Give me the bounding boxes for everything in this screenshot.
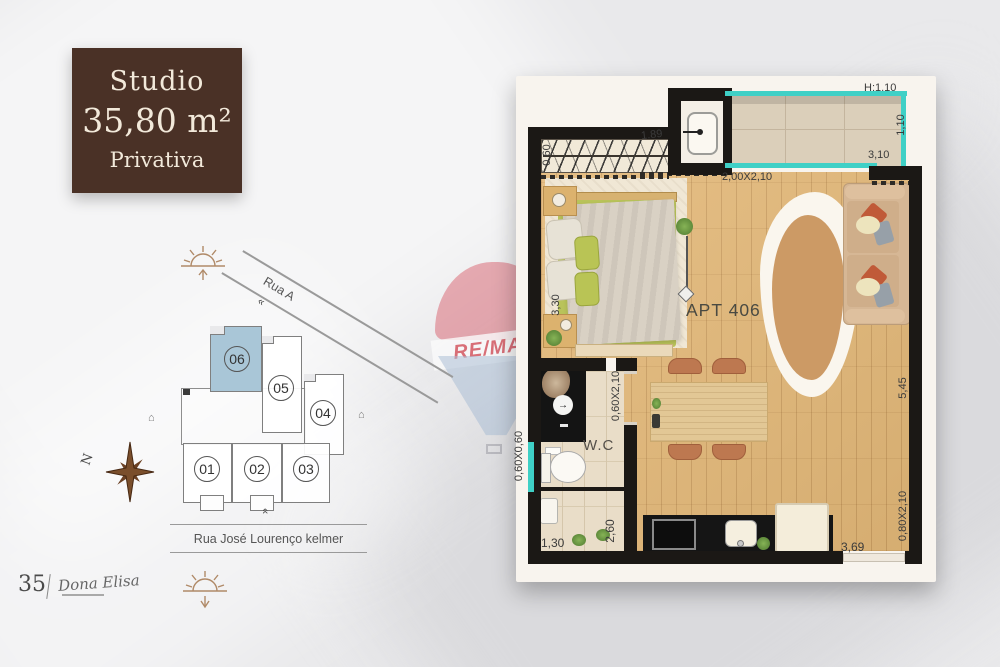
measurement-service-length: 2,60 xyxy=(603,511,617,551)
wc-door-jamb xyxy=(624,371,637,374)
plant xyxy=(757,537,770,550)
measurement-bedroom-length: 3,30 xyxy=(550,285,562,325)
street-line xyxy=(170,552,367,553)
measurement-living-length: 5,45 xyxy=(897,368,909,408)
tv-console xyxy=(575,344,673,357)
measurement-closet-width: 1.89 xyxy=(640,128,663,142)
balloon-basket xyxy=(486,444,502,454)
measurement-parapet-height: H:1.10 xyxy=(864,82,896,94)
entry-door-threshold xyxy=(843,553,905,562)
measurement-balcony-depth: 1,10 xyxy=(895,105,907,145)
wall-bottom-right-segment xyxy=(905,551,922,564)
unit-05-number: 05 xyxy=(268,375,294,401)
sunrise-icon xyxy=(180,236,226,282)
plant xyxy=(546,330,562,346)
cooktop xyxy=(652,519,696,550)
compass-rose-icon xyxy=(100,440,160,504)
entrance-marker-icon: ⌂ xyxy=(148,412,155,424)
access-arrow-icon: « xyxy=(259,508,271,514)
bed-pillow-accent xyxy=(574,271,600,306)
measurement-wc-door: 0,60X2,10 xyxy=(610,361,622,431)
bed-pillow-accent xyxy=(574,235,600,271)
sunset-icon xyxy=(182,563,228,609)
unit-06-number: 06 xyxy=(224,346,250,372)
street-bottom-label: Rua José Lourenço kelmer xyxy=(170,532,367,546)
dining-table xyxy=(650,382,768,442)
apartment-label: APT 406 xyxy=(686,300,761,321)
nightstand-lamp xyxy=(552,193,566,207)
wall-wc-right xyxy=(624,425,637,551)
wall-left xyxy=(528,127,541,564)
measurement-balcony-width: 3,10 xyxy=(868,149,889,161)
page: RE/MAX Studio 35,80 m² Privativa Rua A « xyxy=(0,0,1000,667)
measurement-closet-depth: 0.60 xyxy=(541,135,553,175)
table-plant xyxy=(652,398,661,409)
building-core-mark xyxy=(183,389,190,395)
badge-title: Studio xyxy=(72,66,242,97)
measurement-wc-window: 0,60X0,60 xyxy=(513,421,525,491)
area-badge: Studio 35,80 m² Privativa xyxy=(72,48,242,193)
shower-valve xyxy=(560,424,568,427)
toilet-bowl xyxy=(550,451,586,483)
wc-window xyxy=(528,442,534,492)
badge-subtitle: Privativa xyxy=(72,148,242,172)
badge-area: 35,80 m² xyxy=(72,101,242,140)
dining-chair xyxy=(668,444,702,460)
unit-03-number: 03 xyxy=(293,456,319,482)
plant xyxy=(676,218,693,235)
unit-tab xyxy=(200,495,224,511)
sofa-pillow-cream xyxy=(856,216,880,234)
page-number: 35 xyxy=(18,572,46,597)
unit-02-number: 02 xyxy=(244,456,270,482)
plant xyxy=(572,534,586,546)
sofa-pillow-cream xyxy=(856,278,880,296)
measurement-kitchen-width: 3,69 xyxy=(841,540,864,554)
kitchen-faucet xyxy=(737,540,744,547)
street-line xyxy=(170,524,367,525)
sofa-armrest xyxy=(845,185,905,199)
washbasin-drain xyxy=(697,129,703,135)
brand-signature-subline xyxy=(62,594,104,596)
wall-wc-corner xyxy=(624,358,637,371)
wc-service-divider xyxy=(532,487,624,491)
fridge xyxy=(775,503,829,553)
unit-06-notch xyxy=(210,326,225,335)
entrance-marker-icon: ⌂ xyxy=(358,409,365,421)
measurement-service-width: 1,30 xyxy=(541,536,564,550)
unit-01-number: 01 xyxy=(194,456,220,482)
wc-label: W.C xyxy=(583,437,614,454)
wall-right xyxy=(909,166,922,564)
shower-head: → xyxy=(553,395,573,415)
unit-04-notch xyxy=(304,374,316,382)
table-decor xyxy=(652,414,660,428)
measurement-entry-door: 0,80X2,10 xyxy=(897,481,909,551)
measurement-balcony-door: 2,00X2,10 xyxy=(722,171,772,183)
unit-04-number: 04 xyxy=(310,400,336,426)
wall-bottom-left-segment xyxy=(528,551,843,564)
dining-chair xyxy=(668,358,702,374)
balcony-wall-shadow xyxy=(727,96,903,104)
dining-chair xyxy=(712,444,746,460)
dining-chair xyxy=(712,358,746,374)
laundry-tub xyxy=(540,498,558,524)
unit-05-notch xyxy=(262,336,274,344)
sofa-armrest xyxy=(845,309,905,323)
balcony-glass-bottom xyxy=(725,163,877,168)
closet-rail xyxy=(543,155,669,157)
